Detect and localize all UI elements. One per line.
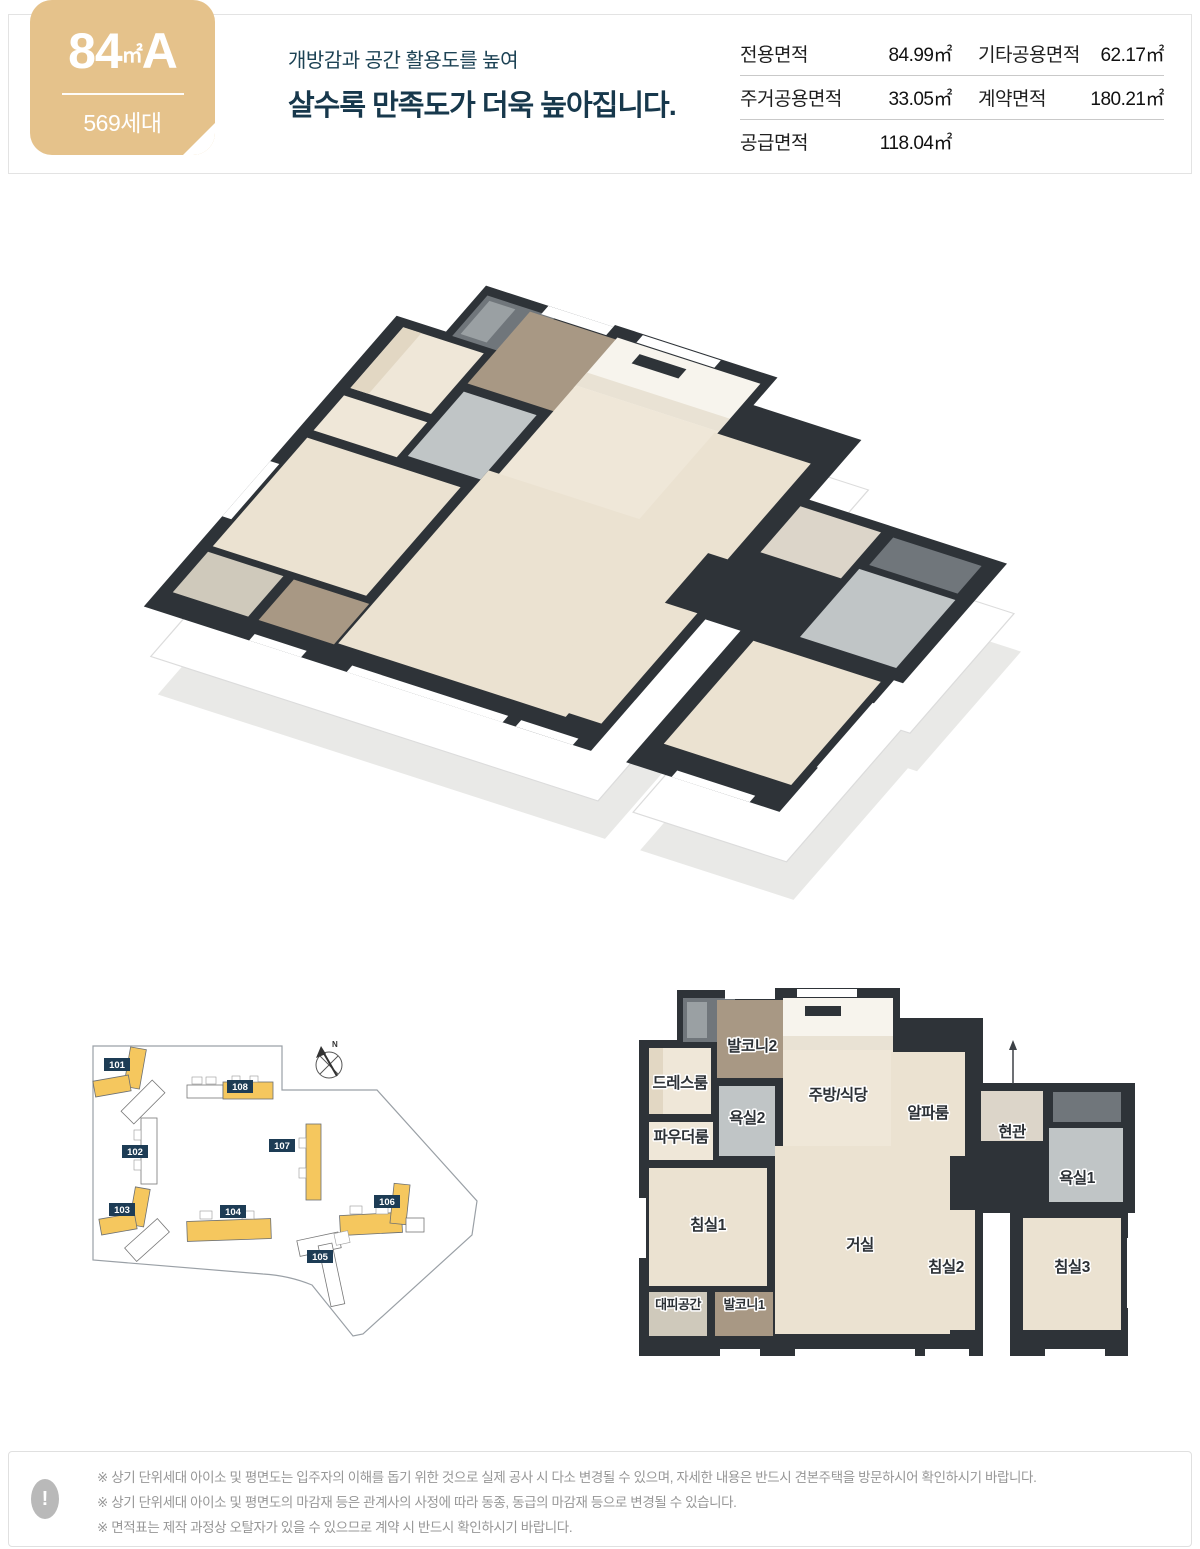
building-label-108: 108 (232, 1082, 248, 1093)
site-building-101: 101 (93, 1047, 165, 1124)
building-label-106: 106 (379, 1197, 395, 1208)
room-label-alpha-room: 알파룸 (907, 1104, 949, 1122)
site-plan: N 101 108 102 107 103 (80, 1038, 520, 1373)
building-label-101: 101 (109, 1060, 126, 1071)
room-label-balcony2: 발코니2 (727, 1037, 776, 1055)
unit-type-letter: A (142, 23, 177, 79)
area-value: 118.04㎡ (850, 128, 952, 155)
room-label-kitchen-dining: 주방/식당 (809, 1086, 869, 1104)
room-label-bedroom3: 침실3 (1054, 1257, 1091, 1276)
room-label-bath2: 욕실2 (729, 1109, 765, 1127)
disclaimer-line: ※ 상기 단위세대 아이소 및 평면도의 마감재 등은 관계사의 사정에 따라 … (97, 1490, 1175, 1515)
area-value: 180.21㎡ (1088, 84, 1164, 111)
households-count: 569세대 (30, 104, 215, 138)
site-building-107: 107 (269, 1124, 321, 1200)
unit-type-badge: 84㎡A 569세대 (30, 0, 215, 155)
entrance-arrow-icon (1009, 1040, 1017, 1084)
page-title: 살수록 만족도가 더욱 높아집니다. (288, 82, 676, 124)
unit-area: 84 (68, 23, 122, 79)
floorplan-2d: 드레스룸 발코니2 주방/식당 알파룸 현관 욕실1 욕실2 파우더룸 침실1 … (625, 988, 1170, 1358)
room-label-bath1: 욕실1 (1059, 1169, 1096, 1187)
room-label-dress-room: 드레스룸 (652, 1074, 707, 1092)
building-label-104: 104 (225, 1207, 242, 1218)
area-value: 33.05㎡ (850, 84, 952, 111)
site-building-108: 108 (187, 1076, 273, 1099)
area-table: 전용면적84.99㎡ 기타공용면적62.17㎡ 주거공용면적33.05㎡ 계약면… (740, 32, 1164, 163)
site-building-102: 102 (122, 1118, 157, 1184)
isometric-floorplan-svg (90, 250, 1150, 960)
area-label: 계약면적 (978, 84, 1088, 111)
building-label-102: 102 (127, 1147, 143, 1158)
exclamation-icon: ! (31, 1479, 59, 1519)
area-table-row: 전용면적84.99㎡ 기타공용면적62.17㎡ (740, 32, 1164, 76)
room-label-bedroom1: 침실1 (690, 1215, 727, 1234)
header-subtitle: 개방감과 공간 활용도를 높여 (288, 44, 676, 73)
site-building-104: 104 (187, 1205, 272, 1241)
area-table-row: 공급면적118.04㎡ (740, 120, 1164, 163)
building-label-107: 107 (274, 1141, 290, 1152)
compass-icon (316, 1046, 342, 1078)
floorplan-2d-svg: 드레스룸 발코니2 주방/식당 알파룸 현관 욕실1 욕실2 파우더룸 침실1 … (625, 988, 1170, 1358)
room-label-refuge-space: 대피공간 (655, 1297, 701, 1312)
area-label: 공급면적 (740, 128, 850, 155)
site-building-106: 106 (340, 1183, 424, 1235)
area-table-row: 주거공용면적33.05㎡ 계약면적180.21㎡ (740, 76, 1164, 120)
header-titles: 개방감과 공간 활용도를 높여 살수록 만족도가 더욱 높아집니다. (288, 44, 676, 124)
isometric-floorplan-render (90, 250, 1150, 960)
disclaimer-notes: ※ 상기 단위세대 아이소 및 평면도는 입주자의 이해를 돕기 위한 것으로 … (97, 1465, 1175, 1540)
room-label-entrance: 현관 (998, 1122, 1026, 1141)
building-label-105: 105 (312, 1252, 329, 1263)
area-label: 전용면적 (740, 40, 850, 67)
disclaimer-line: ※ 면적표는 제작 과정상 오탈자가 있을 수 있으므로 계약 시 반드시 확인… (97, 1515, 1175, 1540)
room-label-living-room: 거실 (846, 1236, 874, 1254)
site-building-103: 103 (99, 1187, 169, 1262)
building-label-103: 103 (114, 1205, 130, 1216)
unit-area-unit: ㎡ (122, 44, 142, 67)
compass-north-label: N (332, 1040, 338, 1049)
site-plan-svg: N 101 108 102 107 103 (80, 1038, 520, 1373)
room-label-bedroom2: 침실2 (928, 1257, 964, 1276)
room-label-balcony1: 발코니1 (723, 1297, 764, 1312)
badge-divider (62, 93, 184, 95)
unit-type-title: 84㎡A (30, 26, 215, 81)
disclaimer-box: ! ※ 상기 단위세대 아이소 및 평면도는 입주자의 이해를 돕기 위한 것으… (8, 1451, 1192, 1547)
area-label: 주거공용면적 (740, 84, 850, 111)
disclaimer-line: ※ 상기 단위세대 아이소 및 평면도는 입주자의 이해를 돕기 위한 것으로 … (97, 1465, 1175, 1490)
area-value: 62.17㎡ (1088, 40, 1164, 67)
room-label-powder-room: 파우더룸 (653, 1128, 708, 1146)
area-label: 기타공용면적 (978, 40, 1088, 67)
area-value: 84.99㎡ (850, 40, 952, 67)
site-building-105: 105 (297, 1231, 350, 1307)
